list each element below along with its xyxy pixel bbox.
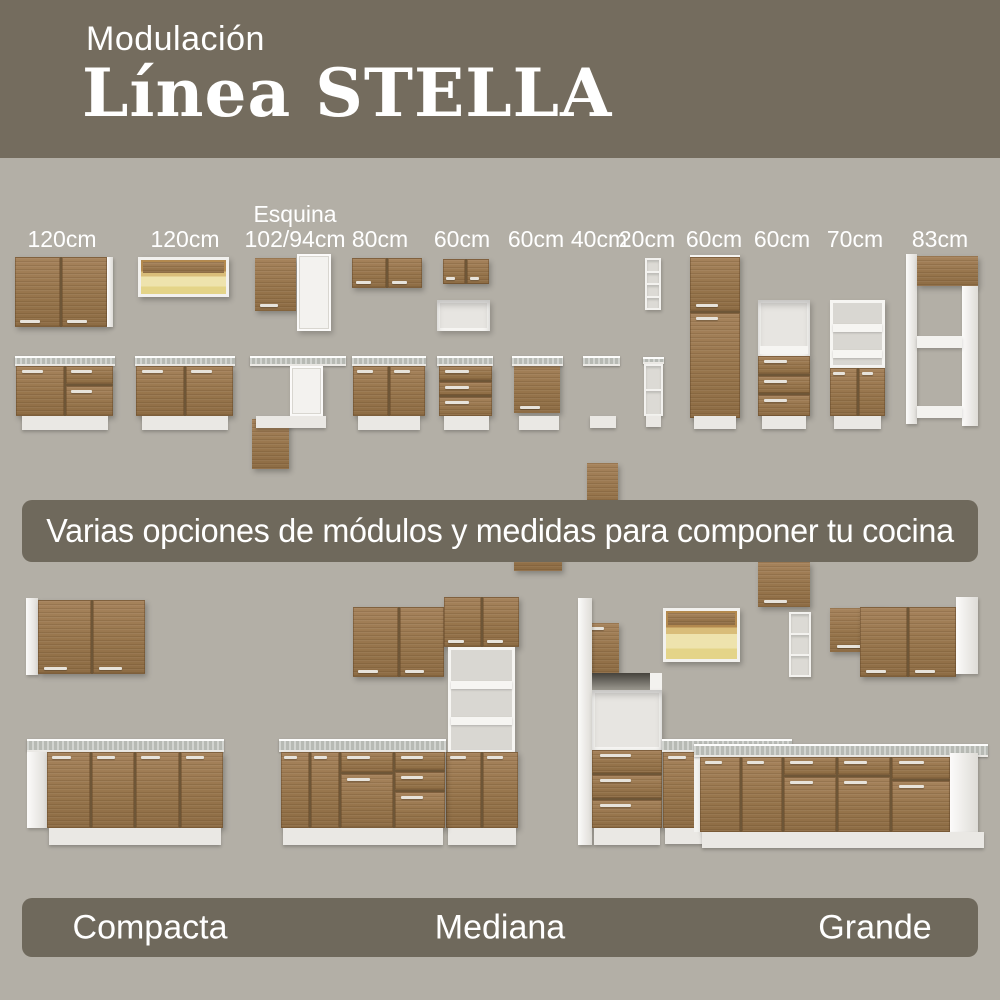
module8-open-base [644, 364, 663, 416]
module8-shelf-column [645, 258, 661, 310]
compacta-base-side-panel [27, 752, 47, 828]
door [483, 752, 518, 828]
door [830, 368, 857, 416]
door [47, 752, 90, 828]
footer-band: Compacta Mediana Grande [22, 898, 978, 957]
grande-base-end-panel [950, 753, 978, 833]
shelf [833, 324, 882, 332]
door [38, 600, 91, 674]
compacta-countertop [27, 739, 224, 752]
module4-base-cabinet [353, 366, 425, 416]
module-size-label-9: 60cm [686, 226, 742, 253]
module9-tall-pantry [690, 255, 740, 418]
mediana-upper-cabinet [353, 607, 444, 677]
module10-oven-cavity [758, 300, 810, 356]
plinth [444, 416, 489, 430]
module6-wall-cabinet [514, 361, 560, 413]
drawer-door-stack [784, 757, 836, 832]
cubby [647, 260, 659, 271]
door [388, 258, 422, 288]
grande-microwave-cavity [592, 673, 650, 690]
module2-countertop [135, 356, 235, 366]
plinth [594, 828, 660, 845]
cubby [647, 285, 659, 296]
cavity-side [650, 673, 662, 690]
grande-upper-end-panel [956, 597, 978, 674]
door [352, 258, 386, 288]
banner-band: Varias opciones de módulos y medidas par… [22, 500, 978, 562]
shelf [833, 350, 882, 358]
plinth [448, 828, 516, 845]
module-size-label-3-top: Esquina [253, 201, 336, 228]
grande-upper-cabinet-right [860, 607, 956, 677]
drawer-door-stack [838, 757, 890, 832]
door [444, 597, 481, 647]
door [467, 259, 489, 284]
module1-wall-cabinet [15, 257, 107, 327]
module-size-label-11: 70cm [827, 226, 883, 253]
module11-base-doors [830, 368, 885, 416]
module4-countertop [352, 356, 426, 366]
door [311, 752, 339, 828]
door [341, 774, 393, 828]
header-title: Línea STELLA [82, 54, 612, 132]
plinth [22, 416, 108, 430]
drawer [439, 397, 492, 416]
header-band: Modulación Línea STELLA [0, 0, 1000, 158]
cubby [646, 366, 661, 389]
door [136, 366, 184, 416]
module3-corner-wall-panel [297, 254, 331, 331]
plinth [358, 416, 420, 430]
door [281, 752, 309, 828]
door [483, 597, 520, 647]
module-size-label-5: 60cm [434, 226, 490, 253]
door [700, 757, 740, 832]
cubby [791, 656, 809, 675]
door [860, 607, 907, 677]
plinth [702, 832, 984, 848]
drawer-door-stack [66, 366, 114, 416]
banner-text: Varias opciones de módulos y medidas par… [46, 512, 954, 550]
mediana-base-cabinet [281, 752, 445, 828]
module5-countertop [437, 356, 493, 366]
door [186, 366, 234, 416]
drawer [838, 757, 890, 775]
door [859, 368, 886, 416]
module8-countertop [643, 357, 664, 364]
door [353, 366, 388, 416]
plinth [694, 416, 736, 429]
module-size-label-6: 60cm [508, 226, 564, 253]
plinth [590, 416, 616, 428]
door [690, 257, 740, 311]
module1-base-cabinet [16, 366, 113, 416]
plinth [646, 416, 661, 427]
grande-tower-drawers [592, 750, 662, 828]
door [92, 752, 135, 828]
door [136, 752, 179, 828]
module10-top-cabinet [758, 562, 810, 607]
door [909, 607, 956, 677]
glass-inner-wood-strip [143, 262, 224, 273]
door [353, 607, 398, 677]
module7-countertop [583, 356, 620, 366]
module12-bottom-shelf [917, 406, 962, 418]
door [400, 607, 445, 677]
grande-glass-wall-cabinet [663, 608, 740, 662]
drawer [395, 772, 445, 790]
drawer [758, 376, 810, 394]
kitchen-name-grande: Grande [818, 908, 931, 947]
mediana-tower-base-doors [446, 752, 518, 828]
kitchen-name-mediana: Mediana [435, 908, 565, 947]
mediana-countertop [279, 739, 446, 752]
cubby [791, 635, 809, 654]
door [181, 752, 224, 828]
module3-countertop [250, 356, 346, 366]
drawer [592, 775, 662, 798]
module12-right-panel [962, 286, 978, 426]
module5-wall-cabinet [443, 259, 489, 284]
drawer [66, 366, 114, 384]
drawer [341, 752, 393, 772]
drawer [892, 781, 950, 832]
module3-corner-base-white-door [290, 366, 323, 416]
mediana-tower-top-cabinet [444, 597, 519, 647]
plinth [762, 416, 806, 429]
door [443, 259, 465, 284]
module1-countertop [15, 356, 115, 366]
plinth [256, 416, 326, 428]
module11-open-shelves [830, 300, 885, 368]
glass-inner-wood-strip [668, 613, 735, 625]
cubby [647, 273, 659, 284]
door [446, 752, 481, 828]
grande-countertop-right [694, 744, 988, 757]
infographic-canvas: Modulación Línea STELLA 120cm 120cm Esqu… [0, 0, 1000, 1000]
cubby [647, 298, 659, 309]
door [15, 257, 60, 327]
plinth [834, 416, 881, 429]
drawer-stack [892, 757, 950, 832]
module-size-label-4: 80cm [352, 226, 408, 253]
door [66, 386, 114, 416]
drawer [395, 752, 445, 770]
drawer [439, 382, 492, 396]
module4-wall-cabinet [352, 258, 422, 288]
module3-corner-wall-door [255, 258, 296, 311]
module5-drawer-base [439, 366, 492, 416]
drawer [592, 800, 662, 828]
cubby [646, 391, 661, 414]
grande-tower-side-panel [578, 598, 592, 845]
module10-drawer-base [758, 356, 810, 416]
module-size-label-2: 120cm [150, 226, 219, 253]
grande-corner-shelves [789, 612, 811, 677]
side-panel [107, 257, 113, 327]
door [784, 777, 836, 832]
drawer [758, 356, 810, 374]
door [16, 366, 64, 416]
door [390, 366, 425, 416]
shelf [451, 681, 512, 689]
door [742, 757, 782, 832]
module12-wood-header [917, 256, 978, 286]
plinth [49, 828, 221, 845]
plinth [519, 416, 559, 430]
drawer [892, 757, 950, 779]
module2-glass-wall-cabinet [138, 257, 229, 297]
shelf [451, 717, 512, 725]
module5-open-box [437, 300, 490, 331]
drawer [784, 757, 836, 775]
module-size-label-3: 102/94cm [244, 226, 345, 253]
drawer [395, 792, 445, 828]
module2-base-cabinet [136, 366, 233, 416]
plinth [142, 416, 228, 430]
module12-mid-shelf [917, 336, 962, 348]
compacta-upper-cabinet [38, 600, 145, 674]
door [690, 313, 740, 418]
module12-left-panel [906, 254, 917, 424]
door [62, 257, 107, 327]
plinth [283, 828, 443, 845]
drawer-door-stack [341, 752, 393, 828]
door [838, 777, 890, 832]
drawer [758, 395, 810, 416]
mediana-tower-open-shelves [448, 647, 515, 753]
drawer [439, 366, 492, 380]
compacta-base-cabinet [47, 752, 223, 828]
kitchen-name-compacta: Compacta [73, 908, 228, 947]
module-size-label-12: 83cm [912, 226, 968, 253]
module-size-label-1: 120cm [27, 226, 96, 253]
grande-base-right [700, 757, 950, 832]
module6-countertop [512, 356, 563, 366]
drawer [592, 750, 662, 773]
cubby [791, 614, 809, 633]
compacta-upper-side-panel [26, 598, 38, 675]
grande-tower-open-cavity [592, 690, 662, 750]
module-size-label-8: 20cm [619, 226, 675, 253]
door [93, 600, 146, 674]
cavity-shelf [760, 346, 808, 354]
module-size-label-10: 60cm [754, 226, 810, 253]
drawer-stack [395, 752, 445, 828]
